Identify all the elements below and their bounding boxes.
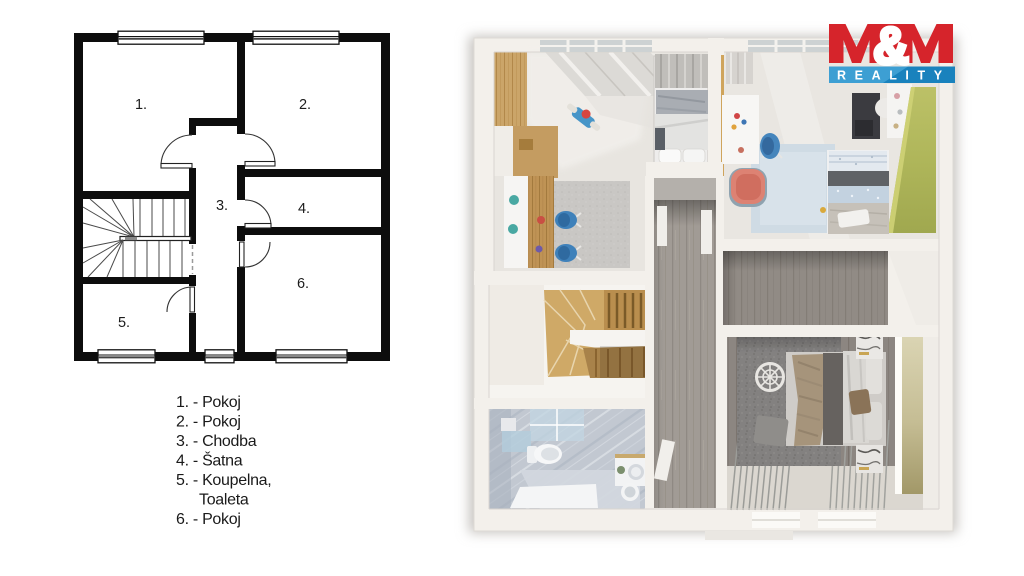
svg-text:2. - Pokoj: 2. - Pokoj [176, 414, 241, 431]
svg-text:4.: 4. [298, 201, 310, 217]
svg-text:Toaleta: Toaleta [199, 492, 249, 509]
svg-text:6. - Pokoj: 6. - Pokoj [176, 511, 241, 528]
svg-text:3.: 3. [216, 198, 228, 214]
svg-text:6.: 6. [297, 276, 309, 292]
svg-text:1. - Pokoj: 1. - Pokoj [176, 394, 241, 411]
svg-text:5. - Koupelna,: 5. - Koupelna, [176, 472, 271, 489]
svg-text:1.: 1. [135, 97, 147, 113]
svg-text:4. - Šatna: 4. - Šatna [176, 451, 243, 470]
svg-text:2.: 2. [299, 97, 311, 113]
svg-text:5.: 5. [118, 315, 130, 331]
svg-text:REALITY: REALITY [837, 69, 951, 83]
svg-text:3. - Chodba: 3. - Chodba [176, 433, 257, 450]
